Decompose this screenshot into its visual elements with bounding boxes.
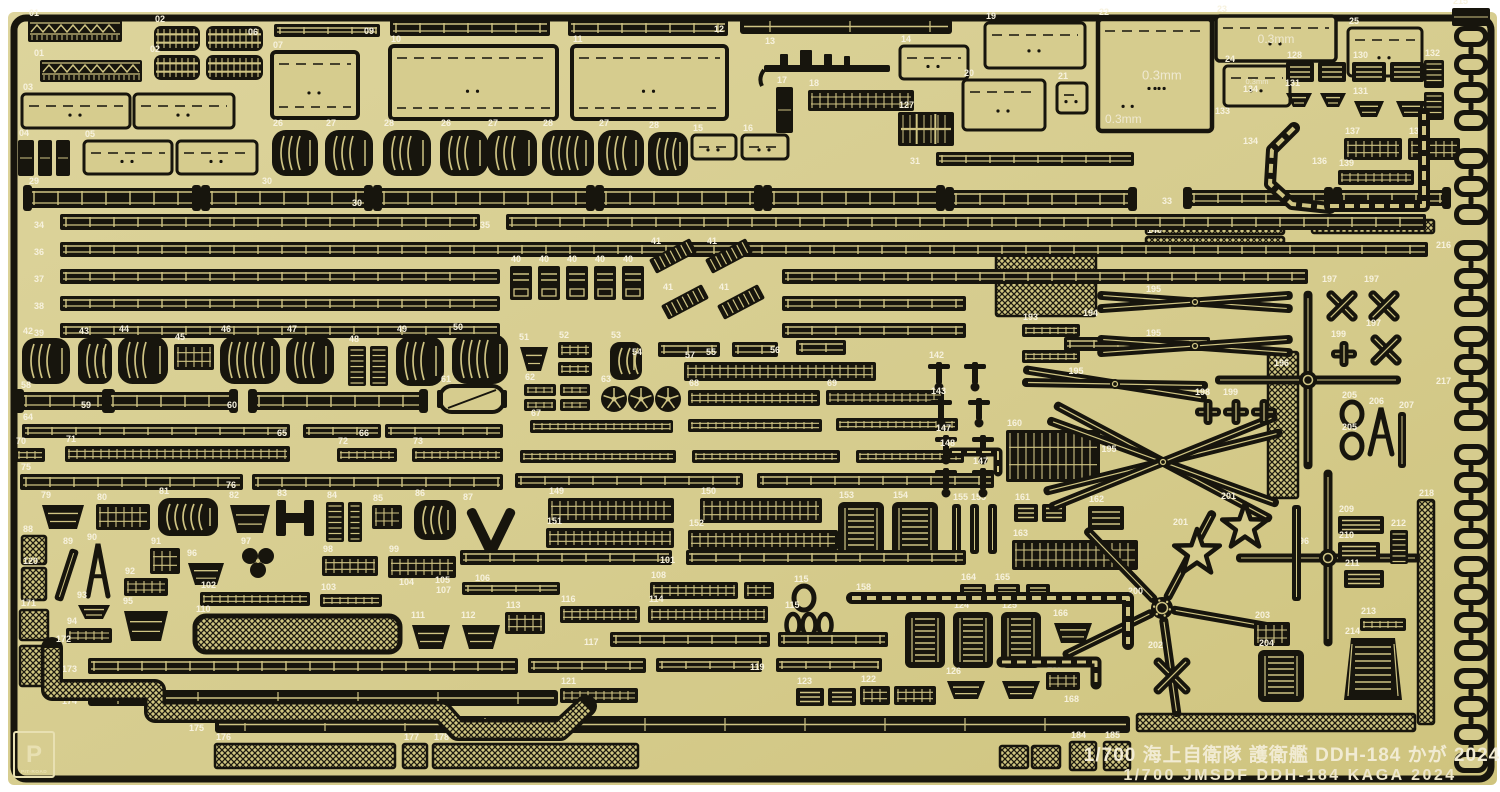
svg-text:28: 28 [543,118,553,128]
svg-text:195: 195 [1102,444,1117,454]
svg-text:82: 82 [229,490,239,500]
svg-text:16: 16 [743,123,753,133]
svg-text:101: 101 [660,555,675,565]
svg-text:26: 26 [273,118,283,128]
svg-text:172: 172 [56,634,71,644]
svg-text:206: 206 [1369,396,1384,406]
svg-text:108: 108 [651,570,666,580]
svg-text:90: 90 [87,532,97,542]
svg-text:121: 121 [561,676,576,686]
svg-text:79: 79 [41,490,51,500]
svg-text:119: 119 [750,662,765,672]
svg-text:114: 114 [649,594,664,604]
svg-text:204: 204 [1259,638,1274,648]
svg-text:03: 03 [23,82,33,92]
svg-text:127: 127 [899,100,914,110]
svg-text:14: 14 [901,34,911,44]
svg-text:39: 39 [34,328,44,338]
svg-text:210: 210 [1339,530,1354,540]
svg-text:164: 164 [961,572,976,582]
svg-text:93: 93 [77,590,87,600]
svg-text:20: 20 [964,68,974,78]
svg-text:165: 165 [995,572,1010,582]
svg-text:97: 97 [241,536,251,546]
svg-text:105: 105 [435,575,450,585]
svg-text:38: 38 [34,301,44,311]
svg-text:116: 116 [561,594,576,604]
svg-text:31: 31 [910,156,920,166]
svg-text:158: 158 [856,582,871,592]
svg-text:173: 173 [62,664,77,674]
svg-text:149: 149 [549,486,564,496]
svg-text:58: 58 [21,380,31,390]
svg-text:205: 205 [1342,422,1357,432]
svg-text:136: 136 [1312,156,1327,166]
svg-text:143: 143 [931,386,946,396]
svg-text:84: 84 [327,490,337,500]
svg-text:197: 197 [1364,274,1379,284]
svg-text:171: 171 [21,598,36,608]
logo-monogram: P [26,741,42,768]
svg-text:122: 122 [861,674,876,684]
svg-text:71: 71 [66,434,76,444]
svg-text:27: 27 [488,118,498,128]
svg-text:30: 30 [262,176,272,186]
svg-text:40: 40 [511,254,521,264]
svg-text:02: 02 [150,44,160,54]
svg-text:46: 46 [221,324,231,334]
svg-text:130: 130 [1353,50,1368,60]
svg-text:19: 19 [986,11,996,21]
svg-text:92: 92 [125,566,135,576]
svg-text:51: 51 [519,332,529,342]
svg-text:11: 11 [573,34,583,44]
svg-text:163: 163 [1013,528,1028,538]
svg-text:01: 01 [29,8,39,18]
svg-text:0.3mm: 0.3mm [1105,112,1142,126]
svg-text:139: 139 [1339,158,1354,168]
svg-text:49: 49 [397,324,407,334]
svg-text:15: 15 [693,123,703,133]
svg-text:72: 72 [338,436,348,446]
svg-text:17: 17 [777,75,787,85]
svg-text:36: 36 [34,247,44,257]
svg-text:134: 134 [1243,84,1258,94]
svg-text:40: 40 [623,254,633,264]
svg-text:41: 41 [707,236,717,246]
svg-text:86: 86 [415,488,425,498]
svg-text:147: 147 [973,456,988,466]
svg-text:25: 25 [1349,16,1359,26]
svg-text:184: 184 [1071,730,1086,740]
svg-text:197: 197 [1366,318,1381,328]
svg-text:160: 160 [1007,418,1022,428]
svg-text:148: 148 [940,438,955,448]
photo-etch-sheet: 0102060703040509101112131417181271920210… [0,0,1500,792]
svg-text:04: 04 [19,128,29,138]
svg-text:128: 128 [1287,50,1302,60]
svg-text:195: 195 [1146,284,1161,294]
svg-text:199: 199 [1223,387,1238,397]
svg-text:13: 13 [765,36,775,46]
svg-text:67: 67 [531,408,541,418]
svg-text:59: 59 [81,400,91,410]
svg-text:54: 54 [632,347,642,357]
svg-text:115: 115 [785,600,800,610]
svg-text:175: 175 [189,723,204,733]
svg-text:176: 176 [216,732,231,742]
svg-text:35: 35 [480,220,490,230]
svg-text:87: 87 [463,492,473,502]
svg-text:102: 102 [201,580,216,590]
svg-text:18: 18 [809,78,819,88]
svg-text:131: 131 [1353,86,1368,96]
svg-text:57: 57 [685,350,695,360]
svg-text:76: 76 [226,480,236,490]
svg-text:85: 85 [373,493,383,503]
svg-text:75: 75 [21,462,31,472]
svg-text:66: 66 [359,428,369,438]
logo-name: PIT-ROAD [21,769,47,775]
svg-text:28: 28 [649,120,659,130]
svg-text:195: 195 [1146,328,1161,338]
svg-text:69: 69 [827,378,837,388]
svg-text:203: 203 [1255,610,1270,620]
svg-text:01: 01 [34,48,44,58]
svg-text:120: 120 [23,556,38,566]
svg-text:44: 44 [119,324,129,334]
svg-text:41: 41 [663,282,673,292]
svg-text:68: 68 [689,378,699,388]
svg-text:153: 153 [839,490,854,500]
svg-text:99: 99 [389,544,399,554]
svg-text:185: 185 [1105,730,1120,740]
svg-text:218: 218 [1419,488,1434,498]
svg-text:91: 91 [151,536,161,546]
svg-text:70: 70 [16,436,26,446]
svg-text:55: 55 [706,347,716,357]
svg-text:161: 161 [1015,492,1030,502]
svg-text:112: 112 [461,610,476,620]
svg-text:94: 94 [67,616,77,626]
svg-text:29: 29 [29,176,39,186]
svg-text:07: 07 [273,40,283,50]
svg-text:98: 98 [323,544,333,554]
svg-text:195: 195 [1069,366,1084,376]
svg-text:213: 213 [1361,606,1376,616]
svg-text:43: 43 [79,326,89,336]
svg-text:132: 132 [1425,48,1440,58]
svg-text:95: 95 [123,596,133,606]
svg-text:61: 61 [441,374,451,384]
svg-text:27: 27 [599,118,609,128]
svg-text:50: 50 [453,322,463,332]
svg-text:199: 199 [1331,329,1346,339]
svg-text:131: 131 [1285,78,1300,88]
svg-text:23: 23 [1217,4,1227,14]
svg-text:10: 10 [391,34,401,44]
svg-text:209: 209 [1339,504,1354,514]
svg-text:88: 88 [23,524,33,534]
svg-text:103: 103 [321,582,336,592]
svg-text:207: 207 [1399,400,1414,410]
svg-text:142: 142 [929,350,944,360]
svg-text:83: 83 [277,488,287,498]
svg-text:133: 133 [1215,106,1230,116]
svg-text:27: 27 [326,118,336,128]
svg-text:196: 196 [1274,358,1289,368]
svg-text:0.3mm: 0.3mm [1142,67,1182,82]
svg-text:40: 40 [595,254,605,264]
svg-text:111: 111 [411,610,425,620]
svg-text:123: 123 [797,676,812,686]
svg-text:45: 45 [175,332,185,342]
svg-text:05: 05 [85,129,95,139]
svg-text:216: 216 [1436,240,1451,250]
svg-text:197: 197 [1322,274,1337,284]
svg-text:33: 33 [1162,196,1172,206]
svg-text:96: 96 [187,548,197,558]
svg-text:151: 151 [547,516,562,526]
svg-text:21: 21 [1058,71,1068,81]
svg-text:214: 214 [1345,626,1360,636]
svg-text:56: 56 [770,345,780,355]
svg-text:41: 41 [651,236,661,246]
svg-text:63: 63 [601,374,611,384]
svg-text:62: 62 [525,372,535,382]
svg-text:107: 107 [436,585,451,595]
svg-text:134: 134 [1243,136,1258,146]
svg-text:150: 150 [701,486,716,496]
svg-text:64: 64 [23,412,33,422]
svg-text:106: 106 [475,573,490,583]
svg-text:47: 47 [287,324,297,334]
svg-text:113: 113 [506,600,521,610]
svg-text:152: 152 [689,518,704,528]
svg-text:48: 48 [349,334,359,344]
svg-text:41: 41 [719,282,729,292]
svg-text:52: 52 [559,330,569,340]
svg-text:201: 201 [1173,517,1188,527]
svg-text:02: 02 [155,14,165,24]
svg-text:194: 194 [1083,308,1098,318]
svg-text:126: 126 [946,666,961,676]
pe-sheet-photo: 0102060703040509101112131417181271920210… [0,0,1500,792]
sheet-title-english: 1/700 JMSDF DDH-184 KAGA 2024 [1123,767,1456,784]
svg-text:73: 73 [413,436,423,446]
svg-text:137: 137 [1345,126,1360,136]
svg-text:30: 30 [352,198,362,208]
svg-text:34: 34 [34,220,44,230]
svg-text:26: 26 [441,118,451,128]
svg-text:154: 154 [893,490,908,500]
svg-text:193: 193 [1023,312,1038,322]
svg-text:0.3mm: 0.3mm [1258,32,1295,46]
svg-text:37: 37 [34,274,44,284]
svg-text:89: 89 [63,536,73,546]
svg-text:168: 168 [1064,694,1079,704]
svg-text:40: 40 [539,254,549,264]
svg-text:201: 201 [1221,491,1236,501]
svg-text:80: 80 [97,492,107,502]
svg-text:117: 117 [584,637,599,647]
svg-text:60: 60 [227,400,237,410]
svg-text:115: 115 [794,574,809,584]
svg-text:81: 81 [159,486,169,496]
svg-text:166: 166 [1053,608,1068,618]
svg-text:22: 22 [1099,7,1109,17]
svg-text:217: 217 [1436,376,1451,386]
svg-text:42: 42 [23,326,33,336]
svg-text:211: 211 [1345,558,1360,568]
svg-text:24: 24 [1225,54,1235,64]
svg-text:104: 104 [399,577,414,587]
svg-text:06: 06 [248,27,258,37]
svg-text:12: 12 [714,24,724,34]
svg-text:212: 212 [1391,518,1406,528]
svg-text:53: 53 [611,330,621,340]
svg-text:215: 215 [1453,0,1468,6]
svg-text:177: 177 [404,732,419,742]
svg-text:155: 155 [953,492,968,502]
svg-text:65: 65 [277,428,287,438]
svg-text:198: 198 [1195,387,1210,397]
svg-text:147: 147 [936,423,951,433]
svg-text:205: 205 [1342,390,1357,400]
svg-text:09: 09 [364,26,374,36]
svg-text:110: 110 [196,604,211,614]
svg-text:40: 40 [567,254,577,264]
svg-text:28: 28 [384,118,394,128]
sheet-title-japanese: 1/700 海上自衛隊 護衛艦 DDH-184 かが 2024 [1084,743,1500,766]
svg-text:202: 202 [1148,640,1163,650]
